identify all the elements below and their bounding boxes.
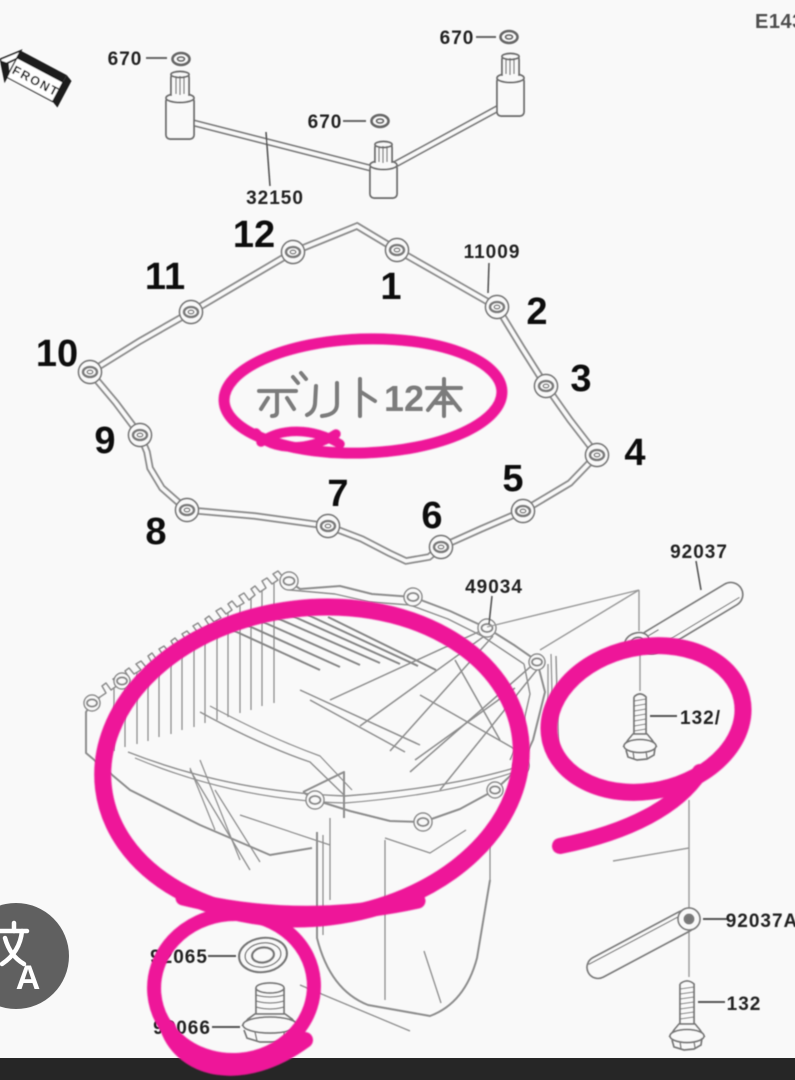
svg-text:670: 670 [440,28,475,49]
svg-text:670: 670 [108,49,143,70]
svg-text:A: A [16,959,41,997]
svg-text:9: 9 [94,420,115,462]
svg-text:2: 2 [526,291,547,333]
svg-text:5: 5 [502,458,523,500]
svg-text:12: 12 [384,378,424,419]
svg-text:7: 7 [327,473,348,515]
svg-text:92037A: 92037A [726,911,795,932]
svg-text:92037: 92037 [670,542,728,563]
svg-text:132/: 132/ [680,708,721,729]
svg-text:4: 4 [624,432,645,474]
svg-text:32150: 32150 [246,188,304,209]
svg-text:1: 1 [380,266,401,308]
svg-text:6: 6 [421,495,442,537]
svg-text:8: 8 [145,511,166,553]
svg-text:E1434: E1434 [755,11,795,33]
svg-text:11009: 11009 [464,242,521,263]
svg-text:10: 10 [36,333,78,375]
svg-text:670: 670 [308,112,343,133]
svg-text:11: 11 [145,256,185,298]
svg-text:132: 132 [727,994,762,1015]
svg-text:3: 3 [570,358,591,400]
svg-text:12: 12 [233,214,275,256]
svg-text:49034: 49034 [465,577,523,598]
